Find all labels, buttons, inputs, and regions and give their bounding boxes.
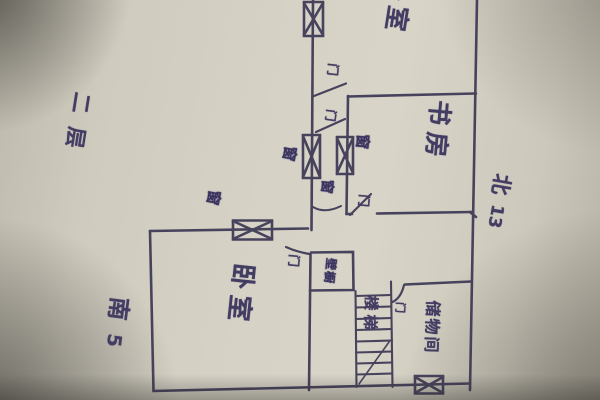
south-label: 南 [105,296,131,322]
room-label-stairs: 楼梯 [361,290,380,339]
floor-plan-photo: 卧室 书房 卧室 楼梯 储物间 壁橱 二层 北 13 南 5 门 门 门 门 门… [0,0,600,400]
north-value: 13 [485,203,506,229]
door-label-bedroom-lower: 门 [286,253,300,268]
door-label-study-upper: 门 [324,108,339,124]
window-label-corridor-left: 窗 [280,144,298,163]
door-swing-lines [286,84,404,303]
annotation-sweep-line [313,206,341,210]
room-label-storage: 储物间 [421,293,442,362]
door-label-study: 门 [356,193,370,208]
window-label-corridor-right: 窗 [354,133,370,150]
door-label-storage: 门 [393,300,407,315]
door-label-bedroom-top: 门 [325,62,339,77]
room-label-bedroom-lower: 卧室 [222,264,258,327]
north-label: 北 [489,172,513,196]
window-label-corridor-mid: 窗 [319,178,336,195]
window-icon-corridor-right [337,137,353,174]
window-label-bedroom: 窗 [204,188,222,207]
south-value: 5 [104,333,124,348]
room-label-study: 书房 [422,103,455,161]
